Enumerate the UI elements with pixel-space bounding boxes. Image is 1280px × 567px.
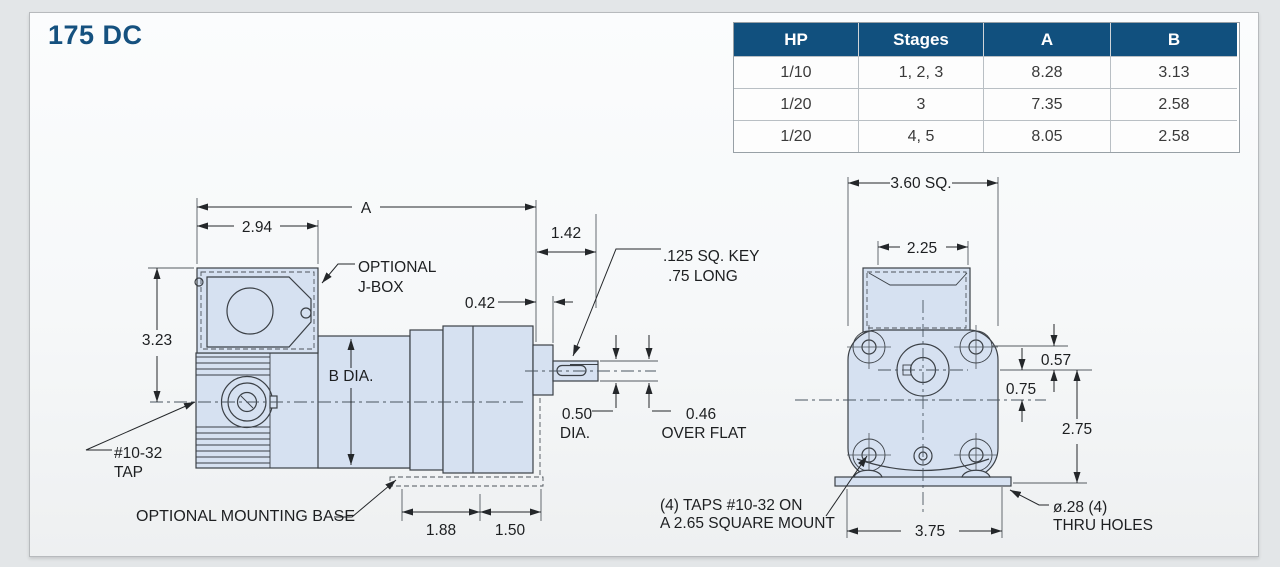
jbox: [197, 268, 318, 353]
dim-label-a: A: [361, 200, 372, 217]
gearhead-step2: [443, 326, 533, 473]
dim-label-0-42: 0.42: [465, 295, 495, 312]
dim-label-1-42: 1.42: [551, 225, 581, 242]
note-mounting-base: OPTIONAL MOUNTING BASE: [136, 480, 396, 525]
dim-label-over-flat: OVER FLAT: [662, 425, 748, 442]
note-tap: #10-32 TAP: [86, 402, 195, 481]
dim-motor-width: 2.25: [878, 240, 968, 265]
dim-label-2-75: 2.75: [1062, 421, 1092, 438]
dim-height-to-centerline: 3.23: [142, 268, 194, 402]
note-square-key: .125 SQ. KEY .75 LONG: [573, 248, 760, 356]
dim-label-dia: DIA.: [560, 425, 590, 442]
dim-label-3-60: 3.60 SQ.: [890, 175, 951, 192]
dim-right-stack: 0.57 0.75 2.75: [992, 324, 1092, 483]
note-key-line1: .125 SQ. KEY: [663, 248, 760, 265]
dim-label-b-dia: B DIA.: [329, 368, 374, 385]
side-view: A 2.94 3.23 1.42: [86, 198, 760, 539]
note-taps-line1: (4) TAPS #10-32 ON: [660, 497, 802, 514]
dim-label-0-50: 0.50: [562, 406, 593, 423]
note-thru-holes: ø.28 (4) THRU HOLES: [1010, 490, 1153, 534]
dim-jbox-width: 2.94: [197, 219, 318, 264]
front-view: 3.60 SQ. 2.25 0.57 0.75: [660, 175, 1153, 540]
motor-end-box: [863, 268, 970, 332]
dim-label-3-75: 3.75: [915, 523, 945, 540]
dim-bolt-span: 3.75: [847, 487, 1002, 540]
dim-label-0-57: 0.57: [1041, 352, 1071, 369]
dim-label-0-46: 0.46: [686, 406, 716, 423]
note-taps: (4) TAPS #10-32 ON A 2.65 SQUARE MOUNT: [660, 456, 867, 532]
technical-drawing: A 2.94 3.23 1.42: [0, 0, 1280, 567]
note-key-line2: .75 LONG: [668, 268, 738, 285]
note-jbox-line1: OPTIONAL: [358, 259, 437, 276]
note-holes-line1: ø.28 (4): [1053, 499, 1107, 516]
note-holes-line2: THRU HOLES: [1053, 517, 1153, 534]
dim-label-0-75: 0.75: [1006, 381, 1036, 398]
note-taps-line2: A 2.65 SQUARE MOUNT: [660, 515, 835, 532]
catalog-page: 175 DC HP Stages A B 1/10 1, 2, 3 8.28 3…: [0, 0, 1280, 567]
gearhead-step1: [410, 330, 443, 470]
note-tap-line2: TAP: [114, 464, 143, 481]
output-boss: [533, 345, 553, 395]
note-tap-line1: #10-32: [114, 445, 162, 462]
dim-base-lengths: 1.88 1.50: [402, 489, 541, 539]
note-jbox-line2: J-BOX: [358, 279, 404, 296]
note-jbox: OPTIONAL J-BOX: [322, 259, 437, 296]
dim-label-3-23: 3.23: [142, 332, 172, 349]
dim-label-2-25: 2.25: [907, 240, 937, 257]
mounting-base-outline: [390, 477, 543, 486]
note-mounting-base-label: OPTIONAL MOUNTING BASE: [136, 508, 355, 525]
dim-label-1-50: 1.50: [495, 522, 526, 539]
dim-over-flat: 0.46 OVER FLAT: [649, 335, 747, 442]
dim-label-2-94: 2.94: [242, 219, 273, 236]
dim-shaft-extension: 1.42: [537, 214, 596, 308]
dim-label-1-88: 1.88: [426, 522, 456, 539]
